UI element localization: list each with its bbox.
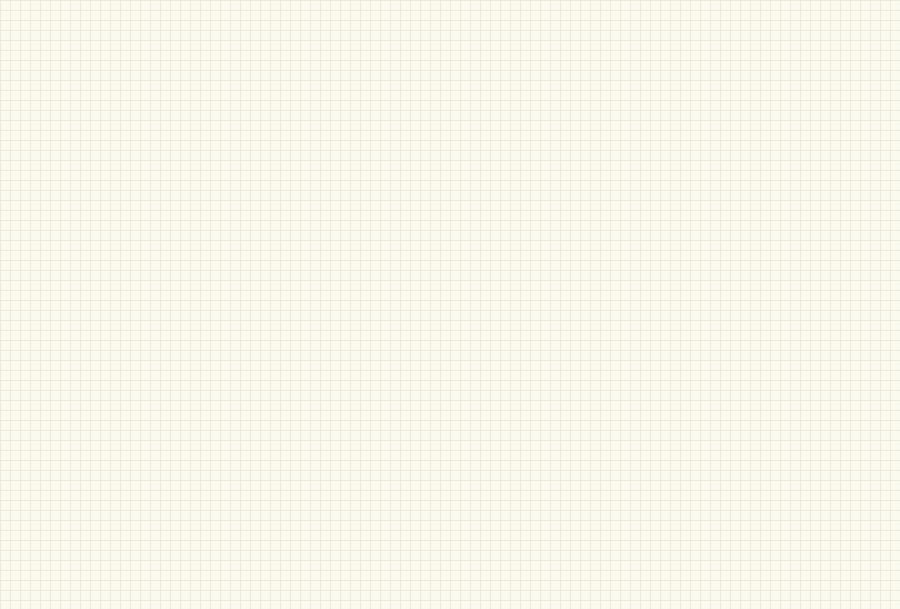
schematic-canvas: [0, 0, 900, 609]
schematic-sheet: [0, 0, 900, 609]
